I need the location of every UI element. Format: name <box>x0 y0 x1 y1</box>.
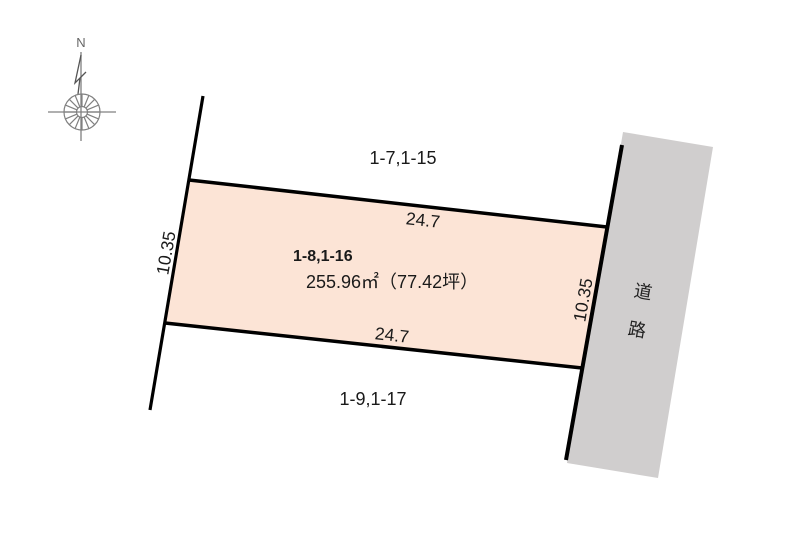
parcel-area-label: 255.96㎡（77.42坪） <box>306 271 478 292</box>
bottom-width-dimension: 24.7 <box>374 323 410 347</box>
north-neighbor-parcel-label: 1-7,1-15 <box>369 148 436 168</box>
compass: N <box>48 35 116 141</box>
south-neighbor-parcel-label: 1-9,1-17 <box>339 389 406 409</box>
road-label-char-1: 道 <box>632 281 653 304</box>
compass-north-label: N <box>76 35 85 50</box>
site-plan-diagram: 1-7,1-15 1-9,1-17 1-8,1-16 255.96㎡（77.42… <box>0 0 794 551</box>
road-label-char-2: 路 <box>626 319 647 342</box>
parcel-id-label: 1-8,1-16 <box>293 248 353 265</box>
top-width-dimension: 24.7 <box>405 208 441 232</box>
site-plan-svg: 1-7,1-15 1-9,1-17 1-8,1-16 255.96㎡（77.42… <box>0 0 794 551</box>
